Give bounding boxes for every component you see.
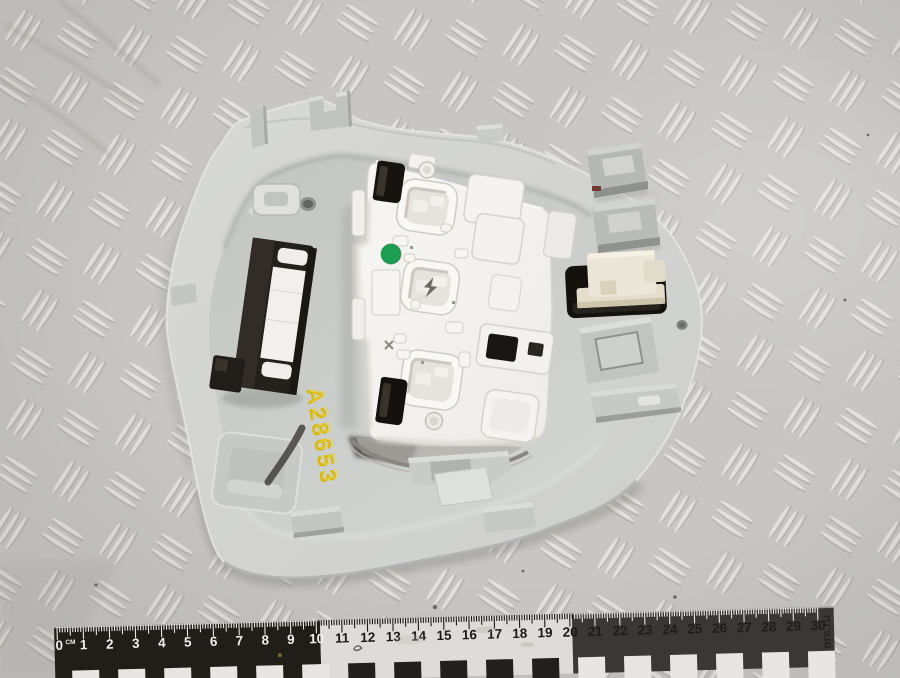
svg-text:ore.ru: ore.ru [819,615,834,649]
svg-text:15: 15 [436,628,452,643]
svg-text:12: 12 [360,630,375,645]
svg-text:23: 23 [637,622,653,637]
svg-text:21: 21 [587,624,603,639]
svg-text:9: 9 [287,632,295,647]
svg-text:0: 0 [55,638,63,653]
svg-text:26: 26 [712,620,728,635]
svg-text:3: 3 [132,636,140,651]
svg-text:4: 4 [158,635,166,650]
svg-text:28: 28 [761,619,777,634]
svg-text:29: 29 [786,619,801,634]
svg-text:27: 27 [737,620,752,635]
svg-text:18: 18 [512,626,528,641]
svg-text:2: 2 [106,637,114,652]
svg-text:7: 7 [235,633,243,648]
svg-text:24: 24 [662,622,678,637]
svg-text:11: 11 [335,630,350,645]
svg-text:19: 19 [537,625,552,640]
svg-text:20: 20 [562,624,577,639]
svg-text:22: 22 [612,623,627,638]
svg-text:10: 10 [309,631,324,646]
svg-text:8: 8 [261,632,269,647]
svg-text:16: 16 [462,627,478,642]
svg-text:6: 6 [210,634,218,649]
svg-text:25: 25 [687,621,703,636]
svg-text:1: 1 [80,637,88,652]
svg-text:5: 5 [184,634,192,649]
svg-text:CM: CM [65,639,75,646]
